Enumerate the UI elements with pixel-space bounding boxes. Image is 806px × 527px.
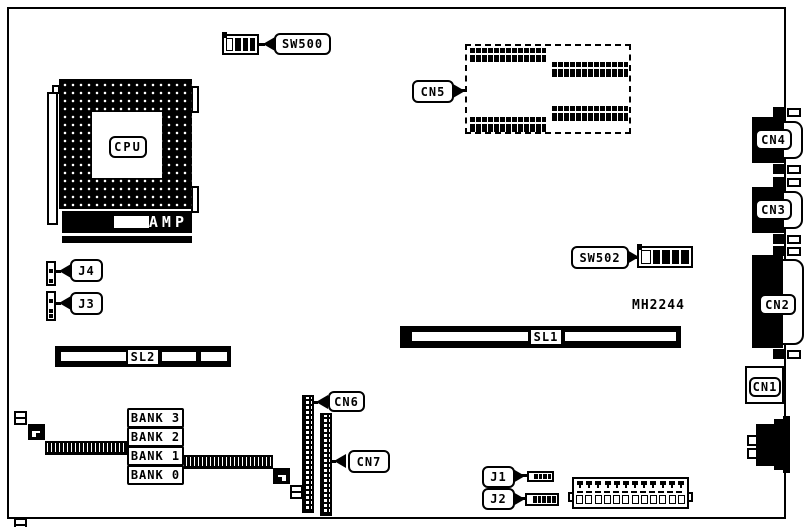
bank3-label: BANK 3 [127,408,184,428]
sl2-slot-key-2 [162,352,196,361]
amp-bar-slot [114,216,149,228]
cn4-mount-screw-top [787,108,801,117]
sw502-callout-stem [634,256,638,259]
bank3-clip-right [273,468,290,484]
cn3-mount-tab-bottom [773,234,784,244]
sl1-label: SL1 [529,328,563,346]
cn5-label: CN5 [412,80,454,103]
cn2-mount-screw-top [787,247,801,256]
din-pin-bottom [747,448,758,459]
din-pin-top [747,435,758,446]
j4-label: J4 [70,259,103,282]
socket-tab-right-top [191,86,199,113]
dip-switch-sw500 [222,34,259,55]
cpu-label: CPU [109,136,147,158]
cn7-label: CN7 [348,450,390,473]
jumper-j3 [46,291,56,321]
jumper-j1 [527,471,554,482]
cn4-mount-screw-bottom [787,165,801,174]
din-connector-body [756,424,785,466]
j1-callout-stem [521,474,528,477]
cn5-pin-strip-top-right [551,62,628,77]
bank3-socket-right [184,455,273,469]
cn6-callout-arrow [316,395,328,409]
bank3-socket-left [45,441,128,455]
sw500-label: SW500 [274,33,331,55]
socket-bottom-bar [62,236,192,243]
sl2-label: SL2 [126,348,160,366]
bank3-end-left [14,411,27,425]
jumper-j2 [525,493,559,506]
part-number-text: MH2244 [632,298,685,313]
cn5-callout-stem [457,89,466,92]
cn4-label: CN4 [755,129,792,150]
cn2-mount-screw-bottom [787,350,801,359]
bank3-clip-left [28,424,45,440]
sl1-slot-key-2 [565,332,676,341]
power-connector-divider [577,491,684,493]
cn5-pin-strip-top-left [469,48,546,62]
cn3-label: CN3 [755,199,792,220]
bank2-label: BANK 2 [127,427,184,447]
cn3-mount-tab-top [773,177,784,187]
motherboard-diagram: CPU AMP SW500 CN5 CN4 CN3 CN2 [0,0,806,527]
bank1-label: BANK 1 [127,446,184,466]
cn5-pin-strip-bottom-right [551,106,628,121]
cn7-callout-arrow [334,454,346,468]
sl2-slot-key-3 [201,352,227,361]
bank2-end-left [14,518,27,527]
sw502-label: SW502 [571,246,629,269]
cn3-mount-screw-bottom [787,235,801,244]
sl1-slot-key-1 [412,332,528,341]
cn2-label: CN2 [759,294,796,315]
amp-label: AMP [149,213,188,231]
jumper-j4 [46,261,56,286]
socket-lever [47,92,58,225]
switch-polarity-mark [222,32,227,38]
sl2-slot-key-1 [61,352,126,361]
pin-header-cn6 [302,395,314,513]
j2-callout-stem [520,497,526,500]
din-connector-step-bottom [774,462,785,470]
socket-tab-right-bottom [191,186,199,213]
bank0-label: BANK 0 [127,465,184,485]
j2-label: J2 [482,488,515,510]
cn1-label: CN1 [749,377,781,397]
pin-header-cn7 [320,413,332,516]
dip-switch-sw502 [637,246,693,268]
cn4-mount-tab-bottom [773,164,784,174]
j1-label: J1 [482,466,515,488]
cn3-mount-screw-top [787,178,801,187]
j3-label: J3 [70,292,103,315]
power-connector-sockets [576,495,685,504]
cn2-mount-tab-bottom [773,349,784,359]
cn5-pin-strip-bottom-left [469,117,546,132]
cn6-label: CN6 [328,391,365,412]
power-connector-pins [577,481,684,489]
cn4-mount-tab-top [773,107,784,117]
